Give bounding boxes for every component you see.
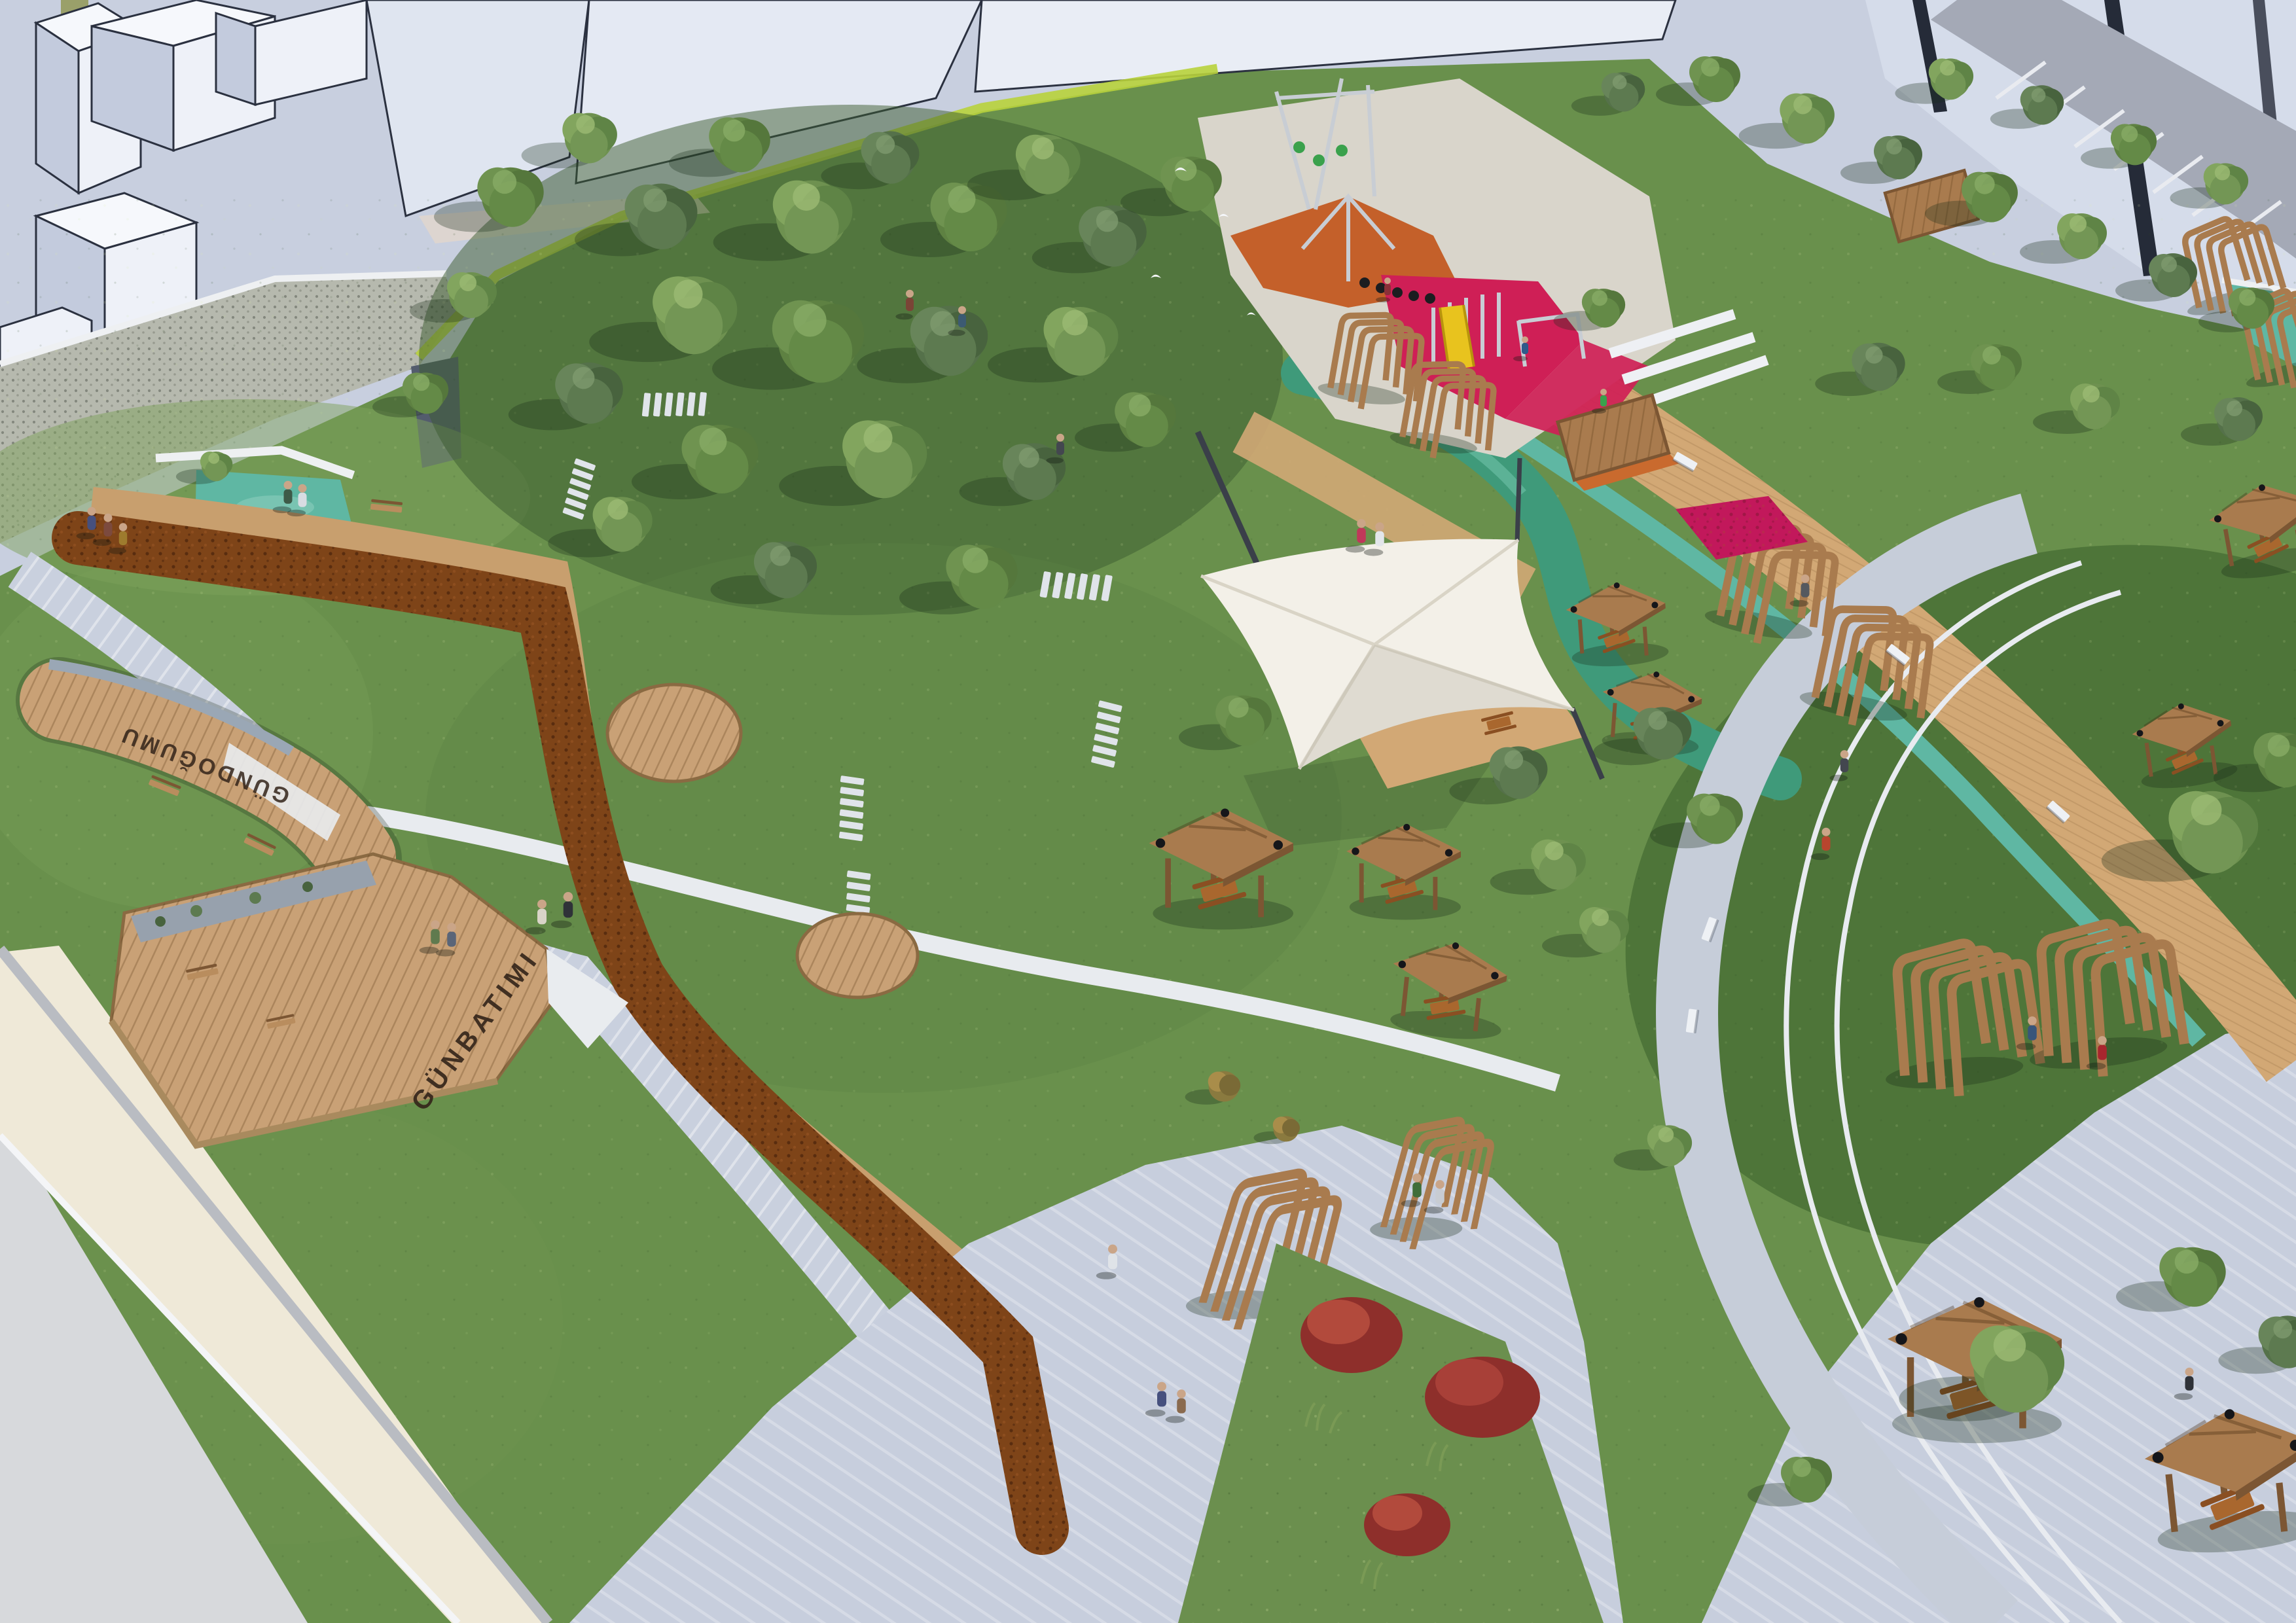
park-aerial-render: GÜNDOĞUMU GÜNBATIMI <box>0 0 2296 1623</box>
park-scene-canvas: GÜNDOĞUMU GÜNBATIMI <box>0 0 2296 1623</box>
canopy-mast <box>1517 458 1520 542</box>
